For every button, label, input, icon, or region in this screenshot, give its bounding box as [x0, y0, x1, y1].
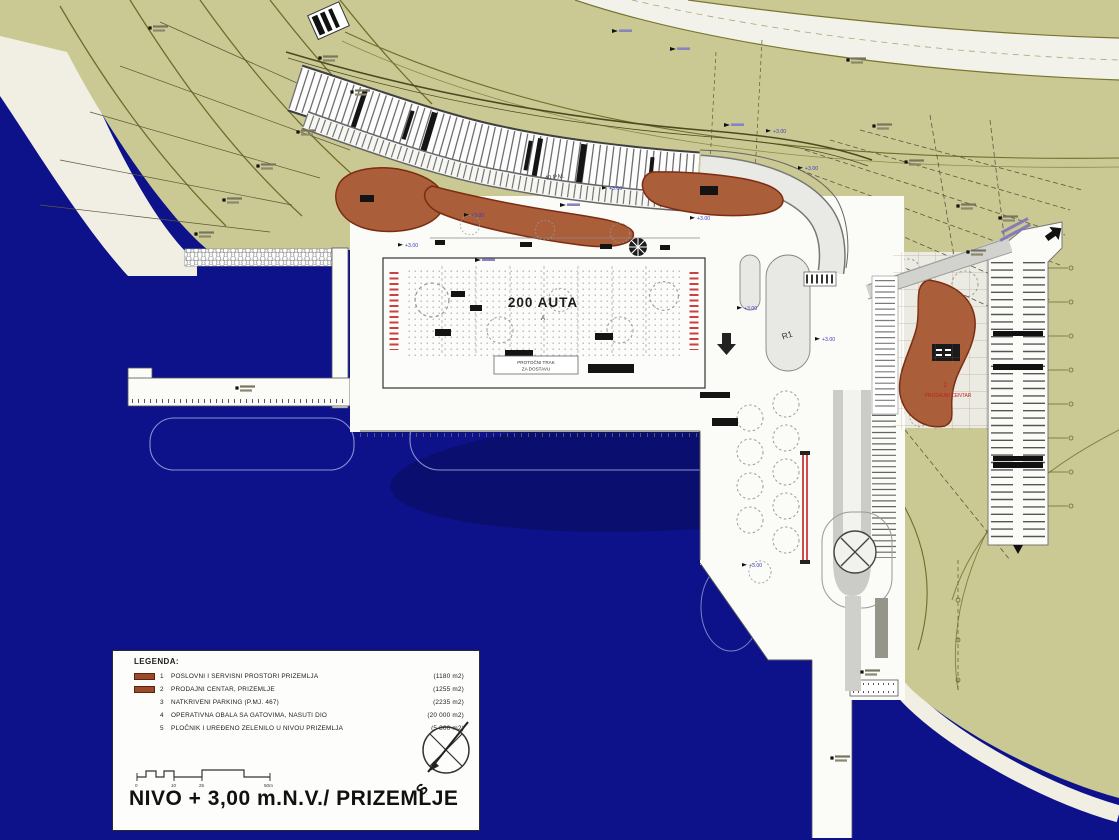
retail-name-label: PRODAJNI CENTAR [925, 393, 972, 399]
spot-elevation: +3.00 [744, 306, 757, 312]
legend-swatch-brown [134, 686, 155, 693]
legend-item-area: (1180 m2) [402, 673, 464, 680]
spot-elevation: +3.00 [609, 186, 622, 192]
service-lane-label: PROTOČNI TRAK ZA DOSTAVU [494, 356, 578, 374]
legend-row: 2 PRODAJNI CENTAR, PRIZEMLJE (1255 m2) [134, 683, 464, 696]
legend-item-number: 3 [160, 699, 171, 706]
legend-row: 1 POSLOVNI I SERVISNI PROSTORI PRIZEMLJA… [134, 670, 464, 683]
legend-item-area: (2235 m2) [402, 699, 464, 706]
parking-capacity-label: 200 AUTA [508, 295, 578, 310]
retail-marker-number: 2 [943, 382, 947, 389]
spot-elevation: +3.00 [805, 166, 818, 172]
legend-item-number: 1 [160, 673, 171, 680]
compass-north-icon: S [402, 710, 492, 802]
service-lane-line2: ZA DOSTAVU [522, 367, 550, 372]
south-quay [128, 378, 350, 406]
legend-item-number: 4 [160, 712, 171, 719]
spot-elevation: +3.00 [405, 243, 418, 249]
legend-item-label: NATKRIVENI PARKING (P.MJ. 467) [171, 699, 402, 706]
service-lane-line1: PROTOČNI TRAK [517, 359, 556, 365]
fountain-circle-icon [629, 238, 647, 256]
legend-item-label: POSLOVNI I SERVISNI PROSTORI PRIZEMLJA [171, 673, 402, 680]
spot-elevation: +3.00 [471, 213, 484, 219]
site-plan-image: 200 AUTA A PROTOČNI TRAK ZA DOSTAVU 40 P… [0, 0, 1119, 840]
spot-elevation: +3.00 [773, 129, 786, 135]
spot-elevation: +3.00 [749, 563, 762, 569]
legend-swatch-brown [134, 673, 155, 680]
scale-bar: 0 10 25 50m [133, 763, 283, 789]
legend-item-number: 5 [160, 725, 171, 732]
breakwater-armour [185, 249, 333, 266]
spot-elevation: +3.00 [822, 337, 835, 343]
legend-item-number: 2 [160, 686, 171, 693]
spot-elevation: +3.00 [697, 216, 710, 222]
parking-row-marker: A [541, 316, 545, 322]
compass-letter: S [413, 780, 432, 799]
legend-item-area: (1255 m2) [402, 686, 464, 693]
legend-item-label: PLOČNIK I UREĐENO ZELENILO U NIVOU PRIZE… [171, 725, 402, 732]
legend-row: 3 NATKRIVENI PARKING (P.MJ. 467) (2235 m… [134, 696, 464, 709]
legend-item-label: PRODAJNI CENTAR, PRIZEMLJE [171, 686, 402, 693]
legend-title: LEGENDA: [134, 657, 179, 666]
legend-item-label: OPERATIVNA OBALA SA GATOVIMA, NASUTI DIO [171, 712, 402, 719]
